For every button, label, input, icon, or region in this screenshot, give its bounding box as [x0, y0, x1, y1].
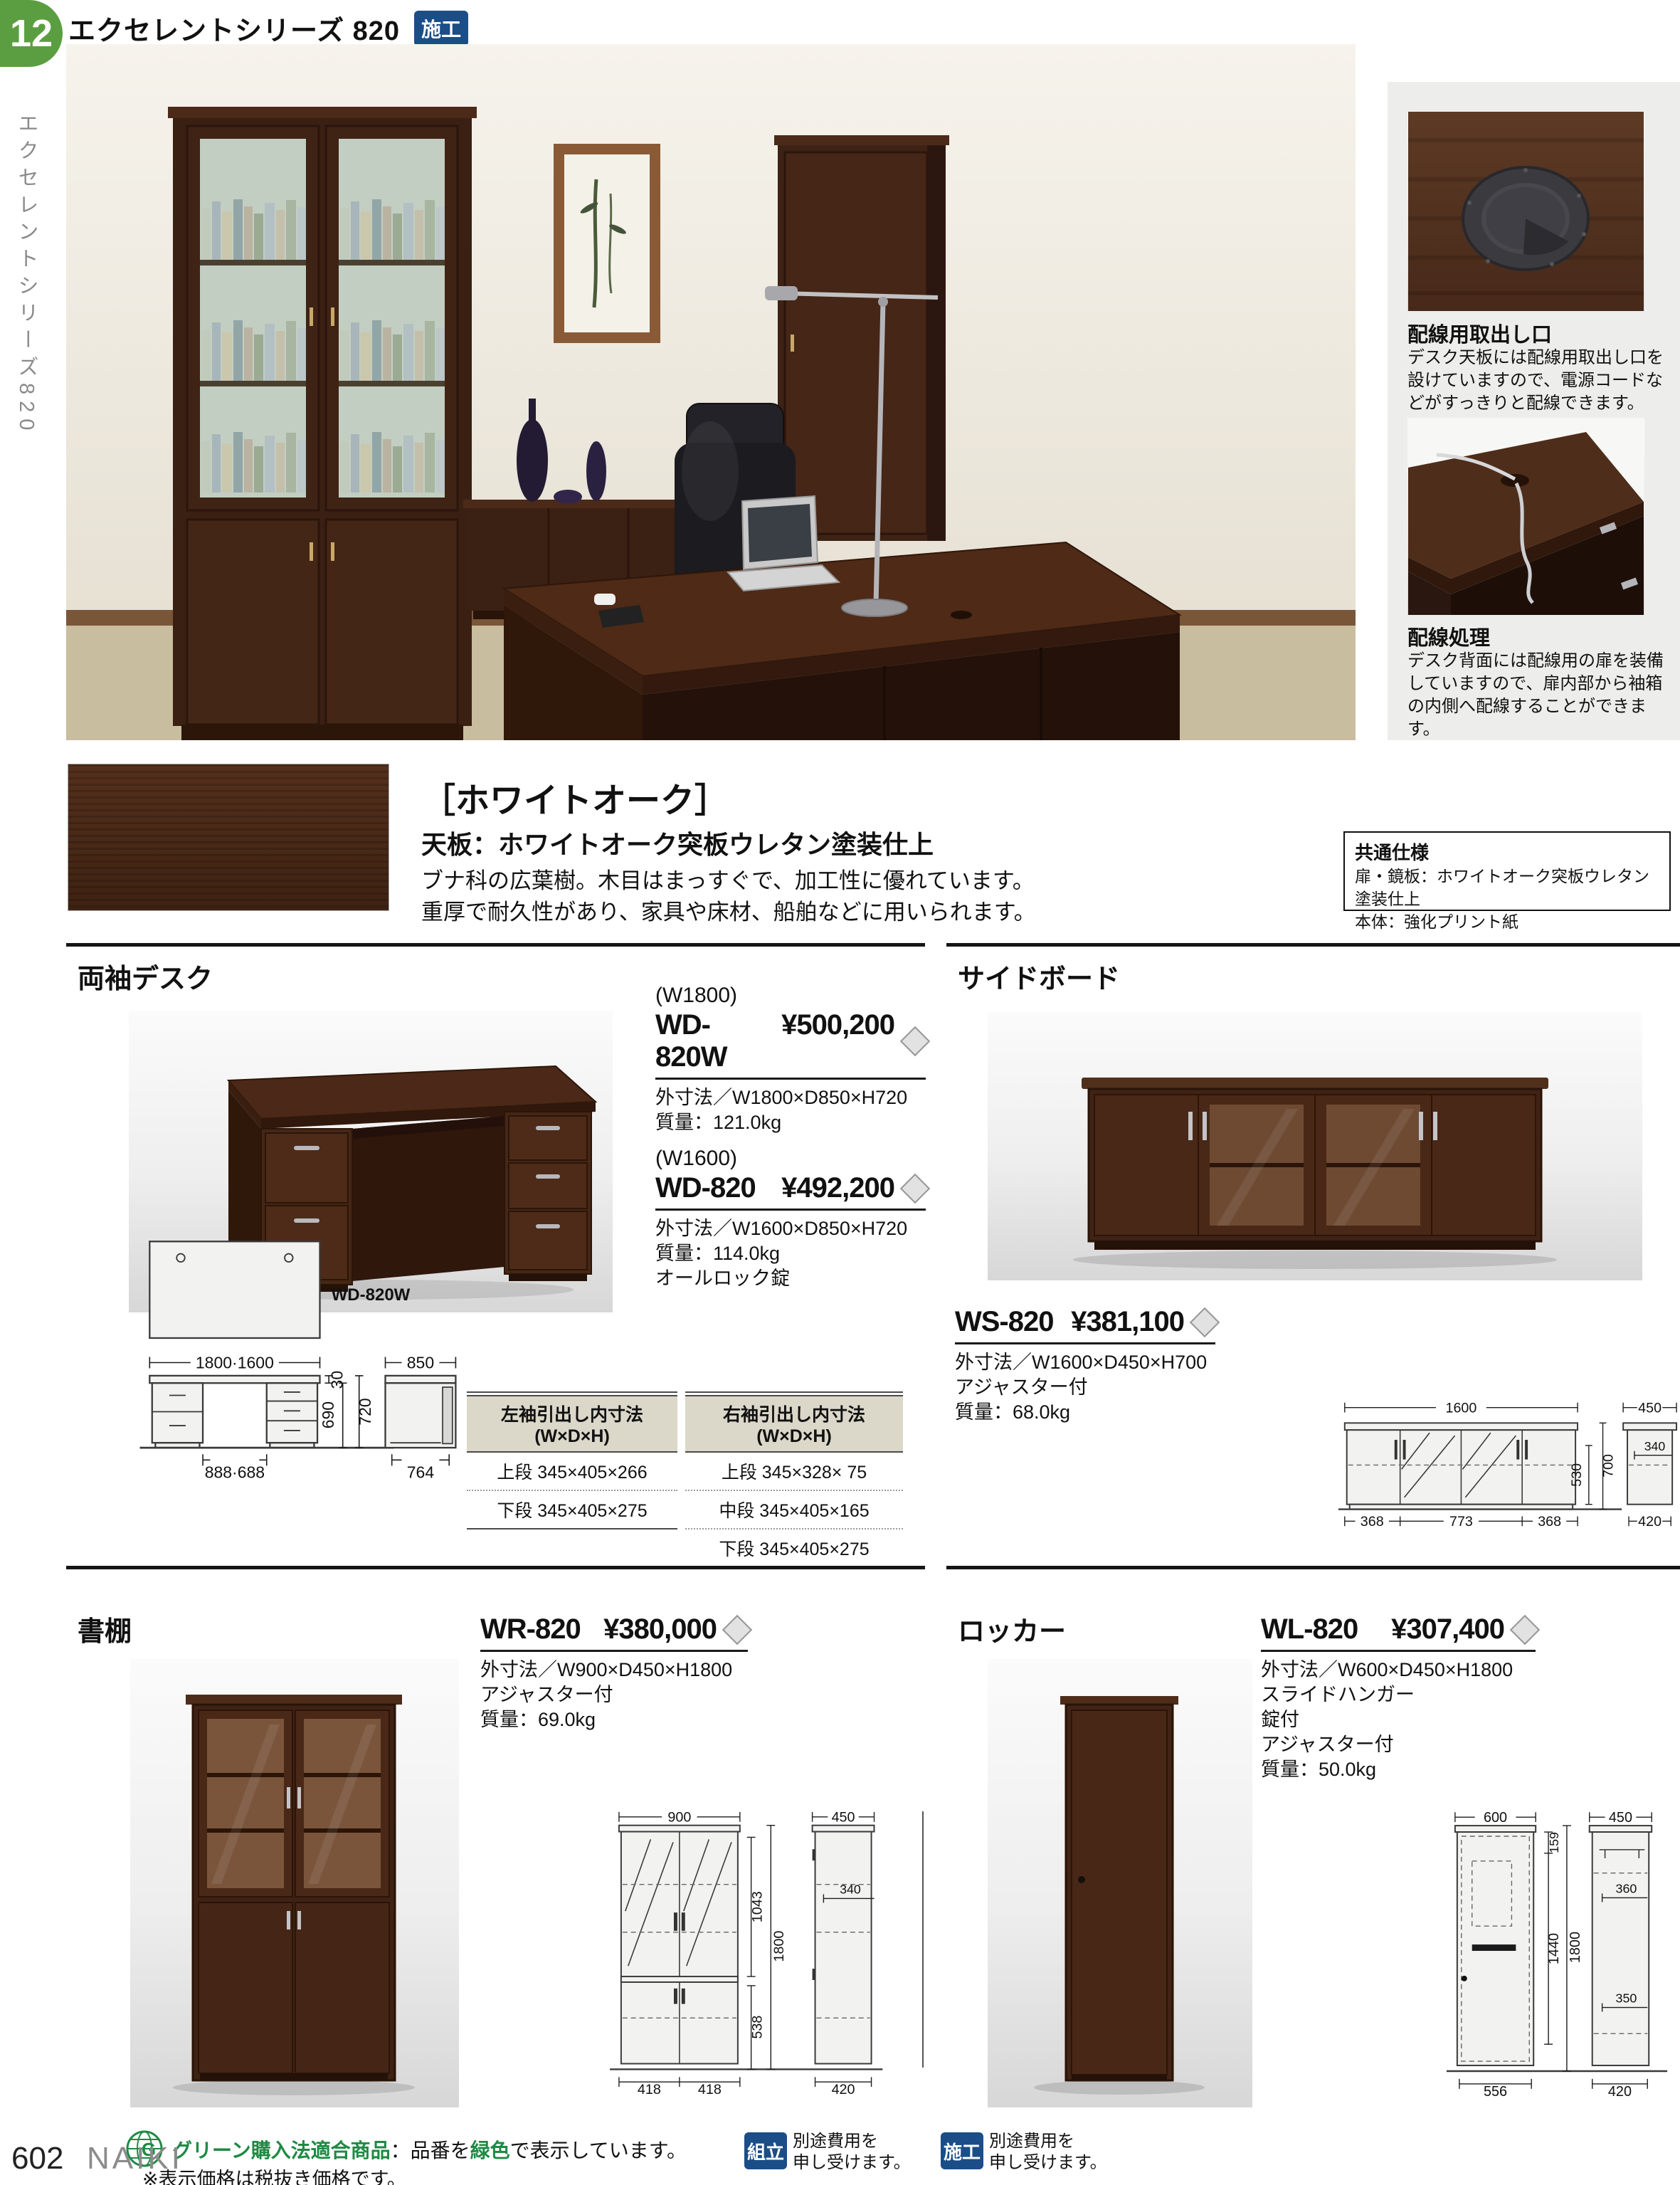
assembly-badge: 組立: [744, 2132, 787, 2169]
dim-label: 368: [1538, 1514, 1561, 1529]
locker-illustration: [988, 1659, 1251, 2104]
sideboard-price-row: WS-820 ¥381,100: [955, 1306, 1215, 1344]
bookcase: [168, 107, 477, 740]
spec-line: アジャスター付: [955, 1375, 1240, 1400]
construction-badge-note: 別途費用を 申し受けます。: [989, 2131, 1107, 2174]
dim-label: 159: [1547, 1832, 1561, 1853]
section-locker: ロッカー WL-820 ¥307,400 外寸法／W600×D450×H1800…: [946, 1566, 1680, 2128]
spec-line: 質量：50.0kg: [1261, 1757, 1574, 1782]
dim-label: 30: [328, 1371, 347, 1389]
column-divider: [922, 1811, 924, 2068]
dim-label: 600: [1484, 1810, 1507, 1826]
dim-label: 530: [1569, 1463, 1585, 1487]
desk-price-row-1: WD-820W ¥500,200: [655, 1009, 926, 1080]
bookshelf-model: WR-820: [480, 1613, 581, 1646]
spec-line: スライドハンガー: [1261, 1683, 1574, 1707]
desk-model-1: WD-820W: [655, 1009, 781, 1073]
dim-label: 888·688: [205, 1463, 265, 1482]
feature-title-2: 配線処理: [1407, 621, 1490, 651]
feature-photo-grommet: [1407, 112, 1644, 311]
badge-note-line: 別途費用を: [989, 2131, 1107, 2152]
finish-desc-1: ブナ科の広葉樹。木目はまっすぐで、加工性に優れています。: [421, 863, 1035, 895]
table-header: 右袖引出し内寸法 (W×D×H): [685, 1395, 903, 1453]
feature-body-1: デスク天板には配線用取出し口を設けていますので、電源コードなどがすっきりと配線で…: [1407, 347, 1672, 415]
dim-label: 420: [1638, 1514, 1661, 1529]
dim-label: 450: [1638, 1401, 1661, 1416]
dim-label: 450: [832, 1810, 855, 1826]
desk-size-1: (W1800): [655, 984, 926, 1008]
dim-label: 1800·1600: [196, 1354, 274, 1372]
locker-specs: 外寸法／W600×D450×H1800 スライドハンガー 錠付 アジャスター付 …: [1261, 1658, 1574, 1782]
common-spec-title: 共通仕様: [1355, 838, 1659, 865]
spec-line: 質量：121.0kg: [655, 1110, 926, 1135]
dim-label: 1600: [1446, 1401, 1477, 1416]
locker-model: WL-820: [1261, 1613, 1358, 1646]
dim-label: 450: [1609, 1810, 1632, 1826]
sideboard-specs: 外寸法／W1600×D450×H700 アジャスター付 質量：68.0kg: [955, 1350, 1240, 1425]
dim-label: 360: [1616, 1882, 1637, 1896]
spec-line: 外寸法／W1600×D850×H720: [655, 1216, 926, 1241]
dim-label: 418: [638, 2082, 661, 2095]
wiring-illustration: [1407, 418, 1644, 615]
catalog-page: 12 エクセレントシリーズ 820 施工 エクセレントシリーズ820: [0, 0, 1680, 2185]
spec-line: 質量：69.0kg: [480, 1707, 779, 1732]
bookshelf-price-block: WR-820 ¥380,000 外寸法／W900×D450×H1800 アジャス…: [480, 1613, 779, 1732]
green-end: で表示しています。: [510, 2139, 687, 2162]
desk-price-2: ¥492,200: [781, 1172, 894, 1204]
feature-body-2: デスク背面には配線用の扉を装備していますので、扉内部から袖箱の内側へ配線すること…: [1407, 650, 1672, 741]
green-mid: ：品番を: [391, 2139, 470, 2162]
dim-label: 1043: [749, 1891, 765, 1922]
table-row: 下段 345×405×275: [685, 1529, 903, 1568]
badge-note-line: 申し受けます。: [989, 2152, 1107, 2174]
green-label: グリーン購入法適合商品: [172, 2139, 391, 2162]
table-header: 左袖引出し内寸法 (W×D×H): [467, 1395, 677, 1453]
price-diamond-icon: [900, 1173, 930, 1203]
finish-name: ［ホワイトオーク］: [421, 772, 729, 822]
dim-label: 556: [1484, 2084, 1507, 2100]
sideboard-price: ¥381,100: [1071, 1306, 1184, 1338]
green-word: 緑色: [470, 2139, 510, 2162]
price-diamond-icon: [722, 1614, 752, 1644]
dim-label: 368: [1361, 1514, 1384, 1529]
construction-badge: 施工: [414, 11, 468, 46]
chapter-tab: 12: [0, 0, 63, 67]
dim-label: 1800: [1568, 1932, 1583, 1963]
dim-label: 773: [1449, 1514, 1473, 1529]
office-scene-illustration: [66, 44, 1356, 740]
dim-label: 420: [832, 2082, 855, 2095]
price-diamond-icon: [900, 1026, 930, 1056]
construction-badge-footer: 施工: [941, 2132, 983, 2169]
locker-product-photo: [988, 1659, 1252, 2107]
drawer-table-left: 左袖引出し内寸法 (W×D×H) 上段 345×405×266 下段 345×4…: [467, 1391, 677, 1529]
assembly-badge-note: 別途費用を 申し受けます。: [793, 2131, 911, 2174]
table-row: 中段 345×405×165: [685, 1491, 903, 1529]
spec-line: アジャスター付: [1261, 1732, 1574, 1757]
bookshelf-price-row: WR-820 ¥380,000: [480, 1613, 748, 1652]
desk-price-1: ¥500,200: [781, 1009, 894, 1041]
page-header: エクセレントシリーズ 820 施工: [68, 9, 468, 48]
locker-price: ¥307,400: [1391, 1613, 1504, 1646]
price-diamond-icon: [1510, 1614, 1540, 1644]
dim-label: 720: [356, 1398, 374, 1425]
dim-label: 690: [319, 1401, 337, 1428]
feature-title-1: 配線用取出し口: [1407, 318, 1552, 348]
wood-swatch: [68, 764, 389, 911]
finish-desc-2: 重厚で耐久性があり、家具や床材、船舶などに用いられます。: [421, 894, 1036, 926]
table-row: 上段 345×405×266: [467, 1453, 677, 1491]
common-spec-line-2: 本体：強化プリント紙: [1355, 910, 1659, 933]
spec-line: 外寸法／W600×D450×H1800: [1261, 1658, 1574, 1683]
dim-label: 420: [1608, 2084, 1632, 2100]
spec-line: 外寸法／W900×D450×H1800: [480, 1658, 779, 1683]
locker-price-row: WL-820 ¥307,400: [1261, 1613, 1536, 1652]
dim-label: 900: [667, 1810, 691, 1826]
desk-price-row-2: WD-820 ¥492,200: [655, 1172, 926, 1211]
locker-dimension-drawing: 600 159 1440 1800 556 360 350 450 420: [1441, 1806, 1676, 2102]
sideboard-price-block: WS-820 ¥381,100 外寸法／W1600×D450×H700 アジャス…: [955, 1306, 1240, 1425]
spec-line: 外寸法／W1800×D850×H720: [655, 1085, 926, 1110]
dim-label: 418: [698, 2082, 722, 2095]
sideboard-illustration: [988, 1012, 1642, 1279]
dim-label: 1440: [1546, 1933, 1562, 1964]
dim-label: 340: [840, 1882, 861, 1896]
bookshelf-product-photo: [130, 1659, 459, 2107]
desk-specs-1: 外寸法／W1800×D850×H720 質量：121.0kg: [655, 1085, 926, 1135]
dim-label: 1800: [771, 1931, 787, 1962]
bookshelf-price: ¥380,000: [603, 1613, 717, 1646]
section-bookshelf: 書棚 WR-820: [66, 1566, 925, 2128]
dim-label: 340: [1644, 1439, 1666, 1453]
page-number: 602: [11, 2141, 63, 2176]
sidebar-series-label: エクセレントシリーズ820: [11, 112, 41, 796]
common-spec-box: 共通仕様 扉・鏡板：ホワイトオーク突板ウレタン塗装仕上 本体：強化プリント紙: [1343, 831, 1671, 911]
table-row: 上段 345×328× 75: [685, 1453, 903, 1491]
wall-art: [554, 144, 660, 343]
tall-cabinet: [774, 135, 949, 541]
sideboard-model: WS-820: [955, 1306, 1054, 1338]
spec-line: 外寸法／W1600×D450×H700: [955, 1350, 1240, 1375]
dim-label: 350: [1616, 1991, 1637, 2006]
dim-label: 538: [749, 2016, 765, 2039]
desk-model-2: WD-820: [655, 1172, 756, 1204]
spec-line: オールロック錠: [655, 1266, 926, 1291]
bookshelf-specs: 外寸法／W900×D450×H1800 アジャスター付 質量：69.0kg: [480, 1658, 779, 1732]
sideboard-product-photo: [988, 1012, 1642, 1280]
badge-note-line: 申し受けます。: [793, 2152, 911, 2174]
hero-photo: [66, 44, 1356, 740]
price-diamond-icon: [1190, 1307, 1220, 1337]
common-spec-line-1: 扉・鏡板：ホワイトオーク突板ウレタン塗装仕上: [1355, 865, 1659, 910]
spec-line: 質量：68.0kg: [955, 1400, 1240, 1425]
bookshelf-illustration: [130, 1659, 458, 2104]
finish-subtitle: 天板：ホワイトオーク突板ウレタン塗装仕上: [421, 824, 934, 861]
drawer-table-right: 右袖引出し内寸法 (W×D×H) 上段 345×328× 75 中段 345×4…: [685, 1391, 903, 1568]
bookshelf-dimension-drawing: 900 1043 538 1800 418 418 450 340 420: [601, 1806, 918, 2095]
dim-label: 764: [407, 1463, 435, 1482]
brand-logo: NAIKI: [87, 2141, 183, 2176]
dim-label: 850: [407, 1354, 434, 1372]
feature-panel: 配線用取出し口 デスク天板には配線用取出し口を設けていますので、電源コードなどが…: [1388, 82, 1680, 740]
section-title-sideboard: サイドボード: [958, 957, 1680, 996]
table-row: 下段 345×405×275: [467, 1491, 677, 1529]
desk-price-block: (W1800) WD-820W ¥500,200 外寸法／W1800×D850×…: [655, 984, 926, 1291]
locker-price-block: WL-820 ¥307,400 外寸法／W600×D450×H1800 スライド…: [1261, 1613, 1574, 1782]
chapter-number: 12: [10, 11, 53, 56]
green-purchase-note: グリーン購入法適合商品：品番を緑色で表示しています。: [172, 2135, 687, 2164]
feature-photo-wiring: [1407, 418, 1644, 615]
desk-specs-2: 外寸法／W1600×D850×H720 質量：114.0kg オールロック錠: [655, 1216, 926, 1291]
section-sideboard: サイドボード WS-: [946, 943, 1680, 1564]
page-title: エクセレントシリーズ 820: [68, 9, 400, 48]
spec-line: 質量：114.0kg: [655, 1241, 926, 1266]
sideboard-dimension-drawing: 1600 530 700 368 773 368 340 450 420: [1334, 1386, 1679, 1542]
badge-note-line: 別途費用を: [793, 2131, 911, 2152]
spec-line: アジャスター付: [480, 1683, 779, 1707]
desk-size-2: (W1600): [655, 1147, 926, 1171]
section-desk: 両袖デスク: [66, 943, 925, 1564]
spec-line: 錠付: [1261, 1707, 1574, 1732]
desk-dimension-drawing: 1800·1600 30 690 720 888·688 850 764: [132, 1240, 459, 1485]
grommet-illustration: [1407, 112, 1644, 311]
dim-label: 700: [1600, 1454, 1616, 1478]
